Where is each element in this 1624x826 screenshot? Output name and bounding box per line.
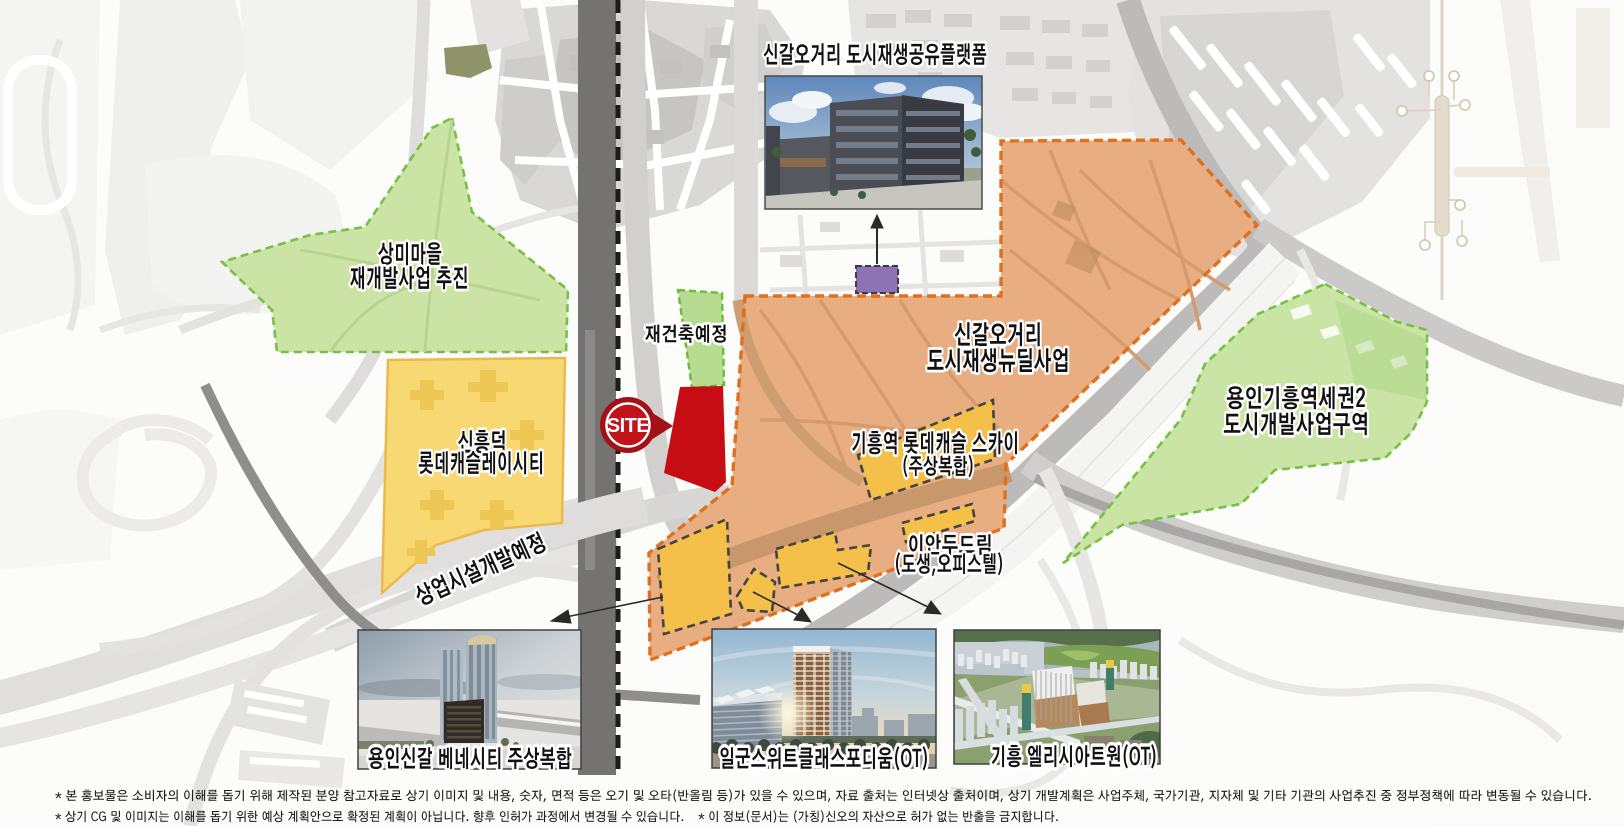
svg-text:SITE: SITE (607, 415, 650, 437)
